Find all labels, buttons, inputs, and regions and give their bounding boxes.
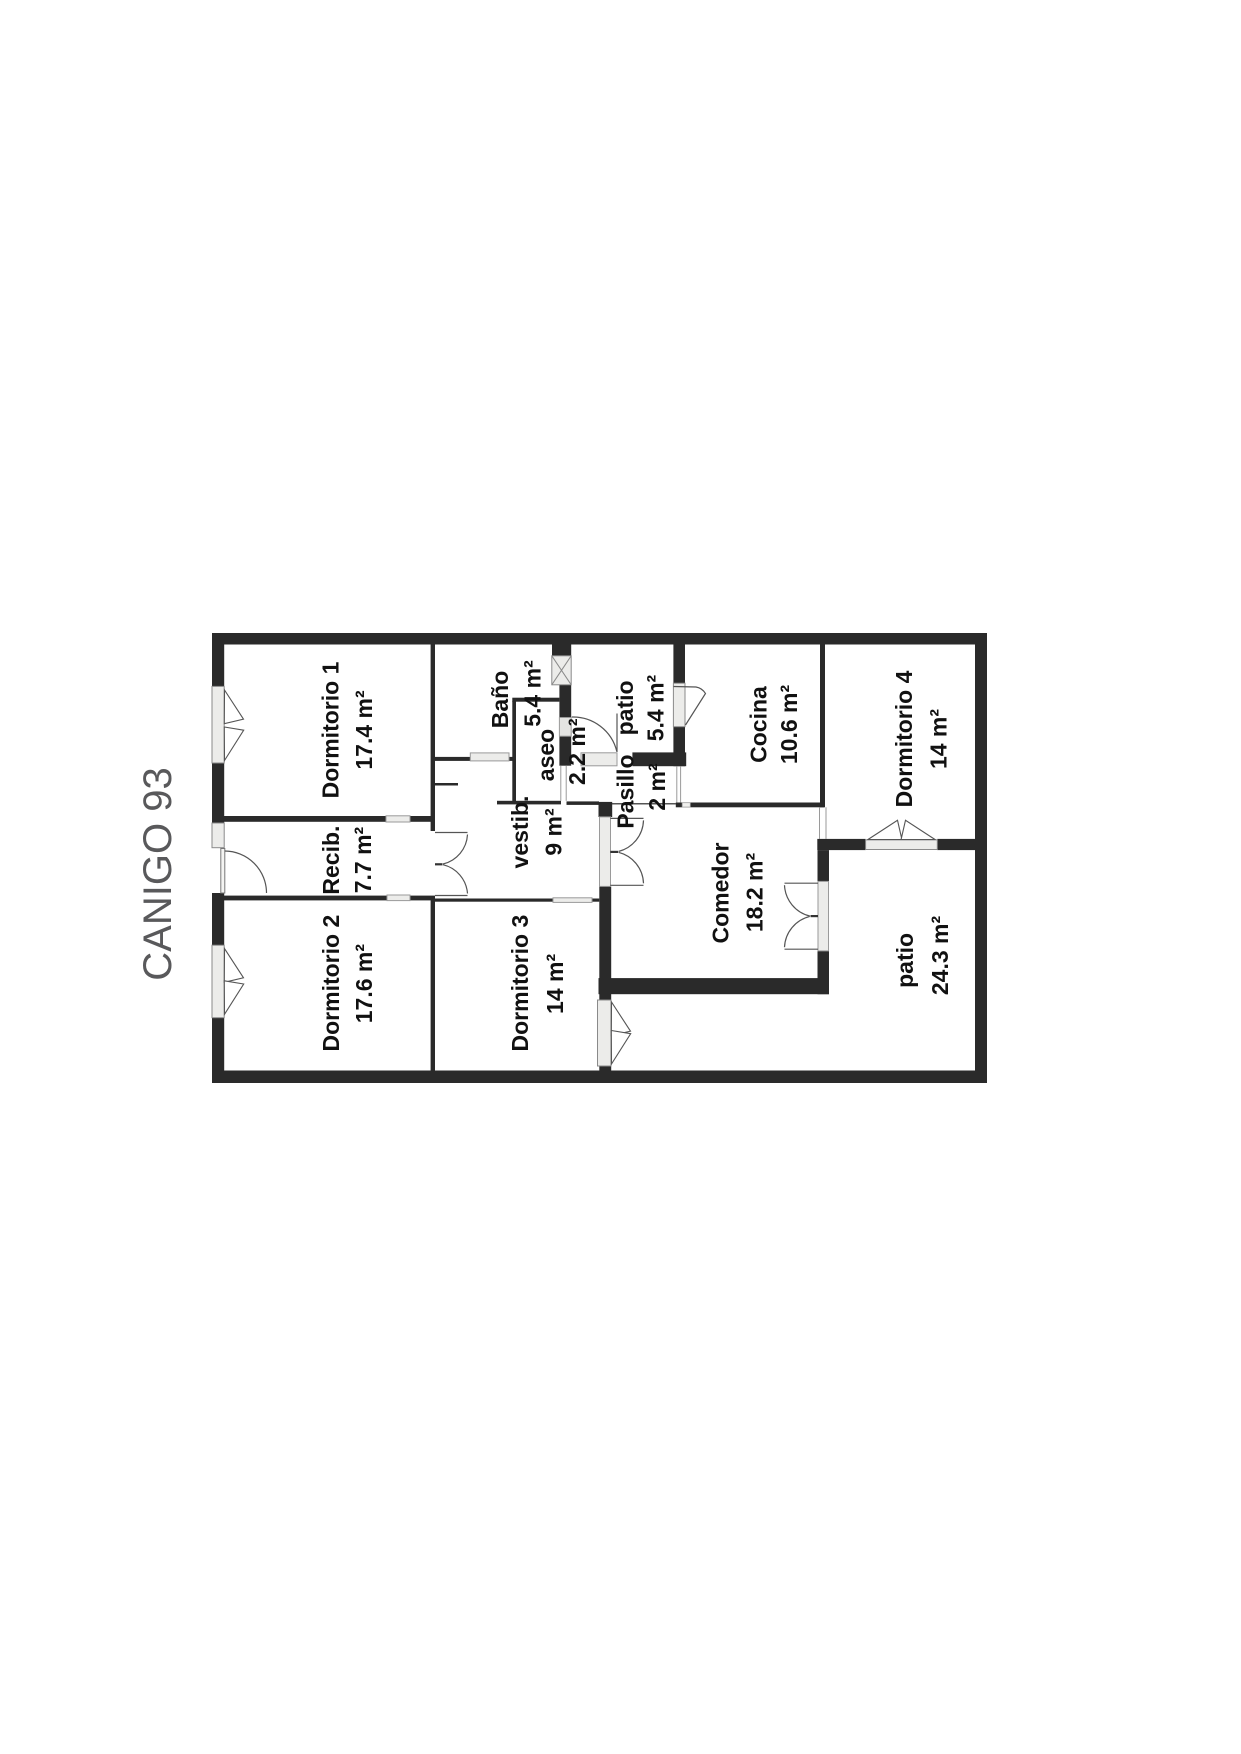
- svg-text:Dormitorio 2: Dormitorio 2: [318, 915, 344, 1052]
- svg-text:5.4 m²: 5.4 m²: [643, 674, 669, 741]
- svg-text:Dormitorio 4: Dormitorio 4: [891, 670, 917, 807]
- svg-text:vestib.: vestib.: [507, 796, 533, 869]
- svg-text:5.4 m²: 5.4 m²: [520, 660, 546, 727]
- svg-text:Baño: Baño: [487, 671, 513, 729]
- svg-text:Recib.: Recib.: [318, 826, 344, 895]
- svg-text:17.6 m²: 17.6 m²: [351, 944, 377, 1024]
- svg-text:9 m²: 9 m²: [541, 808, 567, 856]
- svg-text:patio: patio: [892, 933, 918, 988]
- svg-text:aseo: aseo: [533, 729, 559, 781]
- svg-text:2.2 m²: 2.2 m²: [564, 718, 590, 785]
- svg-text:Cocina: Cocina: [745, 686, 771, 763]
- svg-text:2 m²: 2 m²: [644, 763, 670, 811]
- svg-text:Comedor: Comedor: [708, 842, 734, 943]
- svg-text:CANIGO 93: CANIGO 93: [136, 767, 180, 980]
- svg-text:7.7 m²: 7.7 m²: [350, 826, 376, 893]
- svg-text:17.4 m²: 17.4 m²: [351, 690, 377, 770]
- svg-text:Dormitorio 1: Dormitorio 1: [318, 661, 344, 798]
- svg-text:10.6 m²: 10.6 m²: [776, 685, 802, 765]
- svg-text:24.3 m²: 24.3 m²: [927, 916, 953, 996]
- svg-text:Pasillo: Pasillo: [612, 754, 638, 828]
- svg-text:14 m²: 14 m²: [926, 709, 952, 769]
- svg-text:14 m²: 14 m²: [542, 954, 568, 1014]
- svg-text:patio: patio: [612, 680, 638, 735]
- svg-text:18.2 m²: 18.2 m²: [741, 853, 767, 933]
- svg-text:Dormitorio 3: Dormitorio 3: [507, 915, 533, 1052]
